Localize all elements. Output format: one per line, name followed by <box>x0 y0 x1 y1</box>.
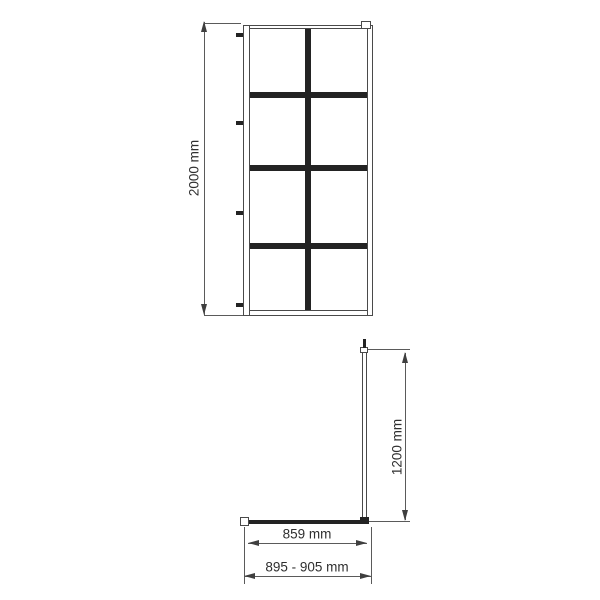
extension-line-right <box>371 527 372 584</box>
technical-drawing-sheet: 2000 mm <box>0 0 600 600</box>
arrowhead-left-icon <box>244 573 255 579</box>
extension-line-bottom <box>204 315 245 316</box>
extension-line-bar-top <box>368 349 410 350</box>
arrowhead-right-icon <box>356 540 367 546</box>
wall-fixing-tick <box>236 211 243 215</box>
dimension-line-installation-width <box>244 576 371 577</box>
installation-width-dimension-label: 895 - 905 mm <box>265 560 348 574</box>
extension-line-bar-bottom <box>369 521 410 522</box>
arrowhead-down-icon <box>201 304 207 315</box>
glass-width-dimension-label: 859 mm <box>283 527 332 541</box>
grid-bar-horizontal <box>250 243 367 249</box>
wall-profile-left <box>243 25 250 316</box>
arrowhead-down-icon <box>402 510 408 521</box>
grid-bar-horizontal <box>250 92 367 98</box>
wall-fixing-tick <box>236 33 243 37</box>
arrowhead-right-icon <box>360 573 371 579</box>
support-bar <box>362 352 367 518</box>
edge-profile-right <box>367 25 373 316</box>
wall-fixing-tick <box>236 121 243 125</box>
arrowhead-left-icon <box>248 540 259 546</box>
arrowhead-up-icon <box>201 21 207 32</box>
glass-edge-line <box>247 520 364 524</box>
arrowhead-up-icon <box>402 352 408 363</box>
wall-fixing-tick <box>236 303 243 307</box>
dimension-line-glass-width <box>248 543 367 544</box>
extension-line-top <box>204 23 241 24</box>
wall-anchor-pin <box>363 339 366 348</box>
height-dimension-label: 2000 mm <box>187 140 201 196</box>
dimension-line-bar-length <box>405 353 406 520</box>
support-bar-dimension-label: 1200 mm <box>390 419 404 475</box>
dimension-line-height <box>204 22 205 315</box>
grid-bar-horizontal <box>250 165 367 171</box>
wall-profile-square <box>240 517 249 526</box>
support-bar-clamp <box>361 21 371 29</box>
glass-panel <box>250 29 367 310</box>
bottom-rail <box>243 310 373 316</box>
glass-bracket <box>360 517 369 524</box>
